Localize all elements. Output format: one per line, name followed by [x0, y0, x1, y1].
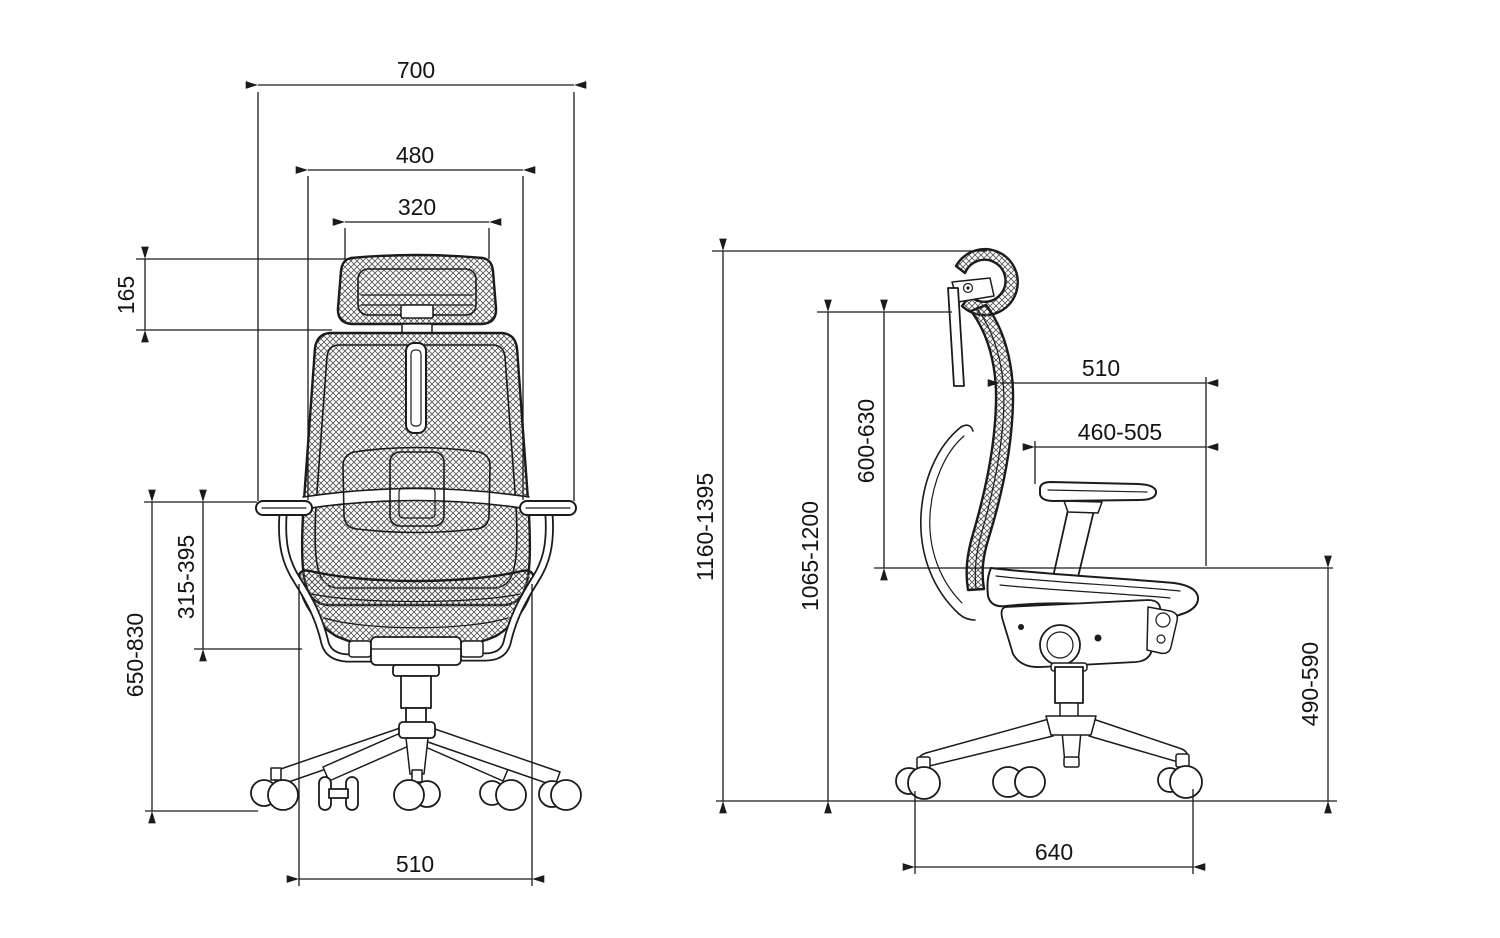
chair-dimension-drawing: 700 480 320 165 315-395 650-830 510 1160… — [0, 0, 1500, 938]
dim-label-back-seat-width: 510 — [396, 851, 434, 877]
dim-label-back-overall-width: 700 — [397, 57, 435, 83]
dim-label-side-armrest-reach: 460-505 — [1078, 419, 1162, 445]
side-view-chair — [896, 249, 1202, 799]
dim-label-side-backrest-top-to-floor: 1065-1200 — [797, 501, 823, 611]
dim-label-side-overall-height: 1160-1395 — [692, 473, 718, 581]
dim-label-side-seat-depth: 510 — [1082, 355, 1120, 381]
dim-label-side-base-depth: 640 — [1035, 839, 1073, 865]
side-mechanism — [1002, 600, 1178, 725]
dim-label-back-headrest-height: 165 — [113, 276, 139, 314]
caster-wheel — [268, 780, 298, 810]
back-backrest — [302, 333, 530, 605]
back-headrest — [338, 255, 496, 333]
dim-label-side-backrest-height: 600-630 — [853, 399, 879, 483]
side-base — [896, 716, 1202, 799]
dim-label-back-armrest-above-seat: 315-395 — [173, 535, 199, 619]
headrest-rod — [948, 288, 964, 386]
dim-label-side-seat-height: 490-590 — [1297, 642, 1323, 726]
dim-label-back-armrest-to-floor: 650-830 — [122, 613, 148, 697]
technical-drawing-canvas: 700 480 320 165 315-395 650-830 510 1160… — [0, 0, 1500, 938]
dim-label-back-backrest-width: 480 — [396, 142, 434, 168]
dim-label-back-headrest-width: 320 — [398, 194, 436, 220]
